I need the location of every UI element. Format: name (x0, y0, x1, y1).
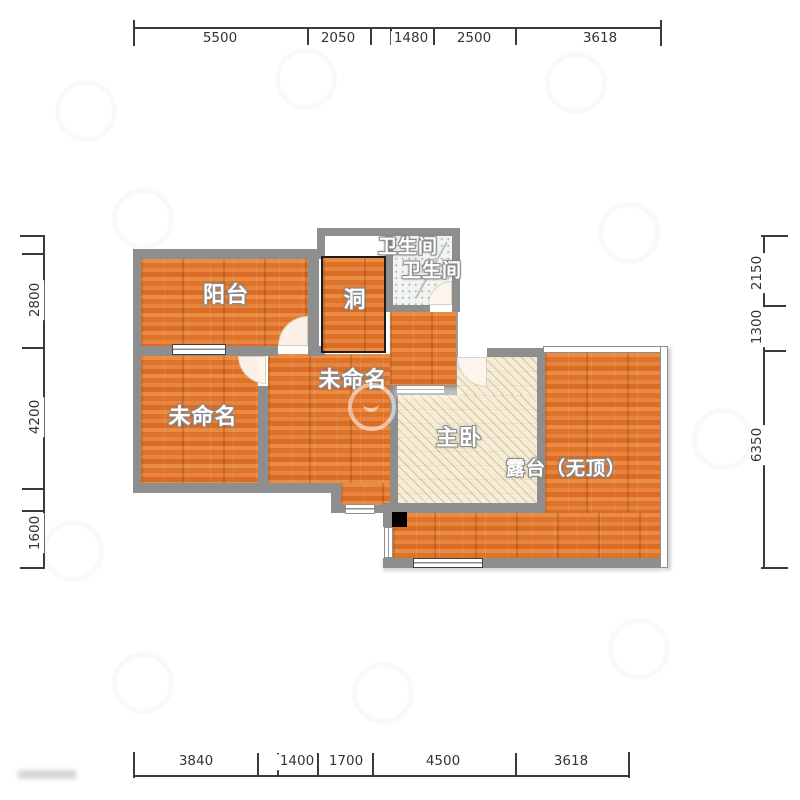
dimension-tick (660, 20, 662, 46)
wall (537, 348, 545, 513)
dimension-tick (307, 27, 309, 45)
dimension-tick (515, 27, 517, 45)
room-label-master-bedroom: 主卧 (436, 420, 482, 452)
terrace-parapet-top (543, 346, 668, 353)
dimension-label: 1300 (750, 307, 766, 347)
dimension-tick (22, 253, 43, 255)
column-marker (392, 512, 407, 527)
room-label-hole: 洞 (343, 282, 366, 314)
dimension-label: 3618 (551, 754, 591, 770)
dimension-label: 6350 (750, 425, 766, 465)
watermark-ring (55, 80, 117, 142)
dimension-label: 4500 (423, 754, 463, 770)
dimension-label: 2500 (454, 31, 494, 47)
watermark-smile-icon (363, 399, 379, 412)
dimension-label: 3618 (580, 31, 620, 47)
room-label-bathroom-2: 卫生间 (402, 256, 462, 283)
window (345, 504, 375, 514)
wall (133, 249, 325, 259)
dimension-tick (761, 235, 788, 237)
watermark-ring (112, 188, 174, 250)
watermark-text-blur (395, 388, 461, 398)
dimension-label: 2800 (28, 280, 44, 320)
floor-terrace-right (545, 353, 660, 513)
watermark-ring (352, 662, 414, 724)
dimension-label: 4200 (28, 397, 44, 437)
room-label-unnamed-left: 未命名 (168, 399, 237, 431)
watermark-ring (42, 520, 104, 582)
dimension-tick (372, 753, 374, 775)
corner-watermark-blur (18, 770, 76, 779)
floor-unnamed-middle-step (341, 483, 390, 505)
dimension-tick (133, 752, 135, 778)
dimension-tick (515, 753, 517, 775)
room-label-terrace: 露台（无顶） (506, 454, 626, 481)
watermark-ring (275, 48, 337, 110)
dimension-tick (370, 27, 372, 45)
dimension-label: 5500 (200, 31, 240, 47)
watermark-ring (692, 408, 754, 470)
dimension-tick (20, 235, 45, 237)
dimension-tick (133, 20, 135, 46)
window (413, 558, 483, 568)
window (384, 527, 393, 558)
watermark-logo (348, 383, 396, 431)
dimension-tick (433, 27, 435, 45)
dimension-tick (761, 567, 788, 569)
dimension-tick (22, 488, 43, 490)
dimension-label: 2150 (750, 253, 766, 293)
dimension-tick (20, 567, 45, 569)
dimension-tick (22, 347, 43, 349)
dimension-tick (763, 305, 786, 307)
dimension-label: 1480 (391, 31, 431, 47)
dimension-label: 1600 (28, 513, 44, 553)
room-label-bathroom-1: 卫生间 (378, 232, 438, 259)
dimension-label: 2050 (318, 31, 358, 47)
wall (133, 249, 141, 493)
dimension-label: 3840 (176, 754, 216, 770)
wall (383, 503, 545, 513)
dimension-tick (22, 510, 43, 512)
watermark-ring (112, 652, 174, 714)
wall (385, 305, 430, 312)
floor-terrace-bottom (393, 513, 660, 558)
room-label-balcony: 阳台 (203, 277, 249, 309)
floor-plan: 阳台 洞 卫生间 卫生间 未命名 未命名 主卧 露台（无顶） 5500 2050… (0, 0, 800, 800)
dimension-line-top (133, 27, 662, 29)
dimension-tick (257, 753, 259, 775)
dimension-label: 1700 (326, 754, 366, 770)
dimension-tick (763, 350, 786, 352)
dimension-label: 1400 (277, 754, 317, 770)
wall (133, 483, 341, 493)
dimension-line-bottom (133, 775, 630, 777)
watermark-ring (598, 202, 660, 264)
dimension-tick (628, 752, 630, 778)
dimension-tick (317, 753, 319, 775)
wall (308, 249, 319, 356)
terrace-parapet-right (660, 346, 668, 568)
window (172, 344, 226, 355)
floor-corridor (390, 312, 458, 387)
watermark-ring (545, 52, 607, 114)
wall (258, 386, 268, 493)
watermark-ring (608, 618, 670, 680)
